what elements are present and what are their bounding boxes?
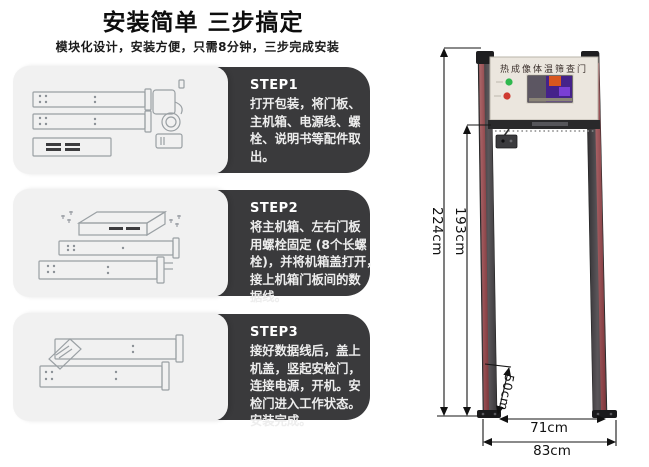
red-indicator-light [503,92,510,99]
gate-left-foot [477,410,501,418]
step2-assembly-illustration [13,189,228,297]
step3-finished-illustration [13,313,228,421]
step2-text: 将主机箱、左右门板 用螺栓固定 (8个长螺 栓)，并将机箱盖打开， 接上机箱门板… [250,219,368,307]
dimension-label-outer-width: 83cm [526,443,578,459]
step2-label: STEP2 [250,201,298,216]
page-subtitle: 模块化设计，安装方便，只需8分钟，三步完成安装 [40,38,355,55]
step1-label: STEP1 [250,78,298,93]
step1-text: 打开包装，将门板、 主机箱、电源线、螺 栓、说明书等配件取 出。 [250,96,368,166]
page-title: 安装简单 三步搞定 [70,3,336,37]
gate-control-box: 热成像体温筛查门 [488,57,600,131]
thermal-display [527,75,573,103]
dimension-label-outer-height: 224cm [429,207,445,256]
step3-text: 接好数据线后，盖上 机盖，竖起安检门， 连接电源，开机。安 检门进入工作状态。 … [250,343,368,431]
step3-illustration-card [13,313,228,421]
step1-parts-illustration [13,66,228,174]
gate-right-foot [592,410,617,418]
green-indicator-light [505,78,512,85]
gate-panel-title: 热成像体温筛查门 [500,63,588,75]
step2-illustration-card [13,189,228,297]
step1-illustration-card [13,66,228,174]
dimension-label-inner-height: 193cm [452,207,468,256]
step3-label: STEP3 [250,325,298,340]
dimension-label-inner-width: 71cm [523,420,575,436]
camera-unit [496,129,517,148]
